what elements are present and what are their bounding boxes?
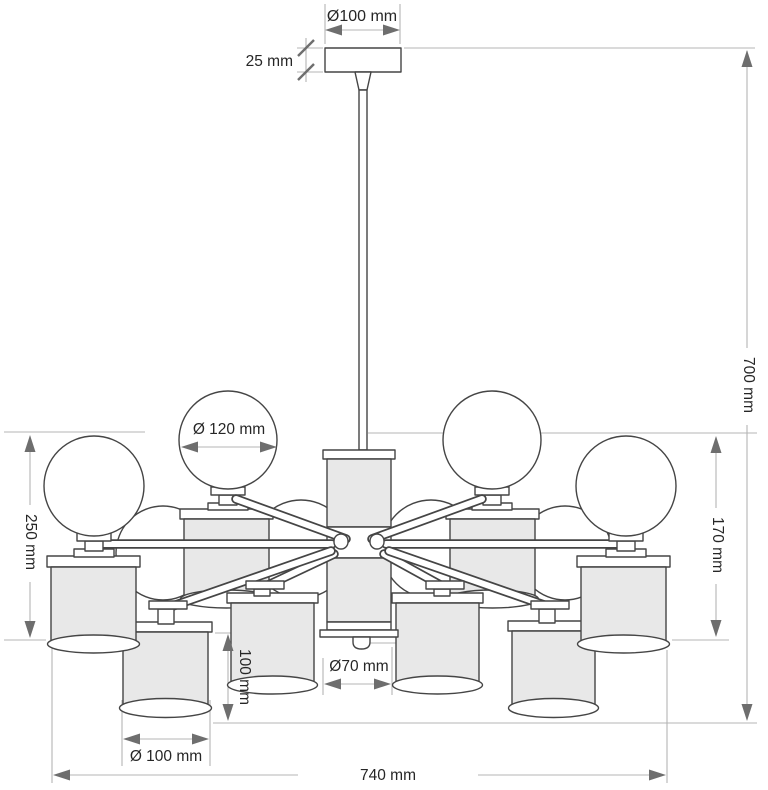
dim-arrow-down [742, 704, 753, 721]
dim-column-diameter-label: Ø70 mm [329, 658, 388, 675]
cylinder-shade [392, 593, 483, 694]
dim-arrow-left [123, 734, 140, 745]
dim-overall-height-label: 700 mm [740, 357, 757, 413]
dim-shade-height-label: 100 mm [236, 649, 253, 705]
dim-arrow-right [374, 679, 391, 690]
dim-arrow-left [53, 770, 70, 781]
globe-shade [443, 391, 541, 510]
dim-arrow-up [742, 50, 753, 67]
dim-overall-width-label: 740 mm [360, 767, 416, 784]
dim-shade-diameter-label: Ø 100 mm [130, 748, 202, 765]
dim-arrow-up [711, 436, 722, 453]
ceiling-canopy [325, 48, 401, 90]
dim-arrow-down [711, 620, 722, 637]
dim-globe-diameter-label: Ø 120 mm [193, 421, 265, 438]
cylinder-shade [47, 556, 140, 653]
dim-arrow-down [25, 621, 36, 638]
chandelier-fixture [44, 48, 676, 718]
dim-canopy-diameter-label: Ø100 mm [327, 8, 397, 25]
arm-socket [334, 534, 348, 549]
dim-arrow-down [223, 704, 234, 721]
dim-arrow-right [192, 734, 209, 745]
arm-socket [370, 534, 384, 549]
dim-canopy-height-label: 25 mm [246, 53, 293, 70]
dim-body-height-label: 170 mm [709, 517, 726, 573]
hanging-rod [359, 90, 367, 450]
column-bottom-cap [320, 630, 398, 649]
chandelier-technical-drawing: Ø100 mm 25 mm Ø 120 mm 700 mm 170 mm 250… [0, 0, 768, 790]
technical-drawing-page: Ø100 mm 25 mm Ø 120 mm 700 mm 170 mm 250… [0, 0, 768, 790]
dim-arrow-left [325, 25, 342, 36]
dim-left-height-label: 250 mm [22, 514, 39, 570]
dim-arrow-right [649, 770, 666, 781]
dim-arrow-left [324, 679, 341, 690]
dim-arrow-right [383, 25, 400, 36]
dim-arrow-up [25, 435, 36, 452]
cylinder-shade [577, 556, 670, 653]
